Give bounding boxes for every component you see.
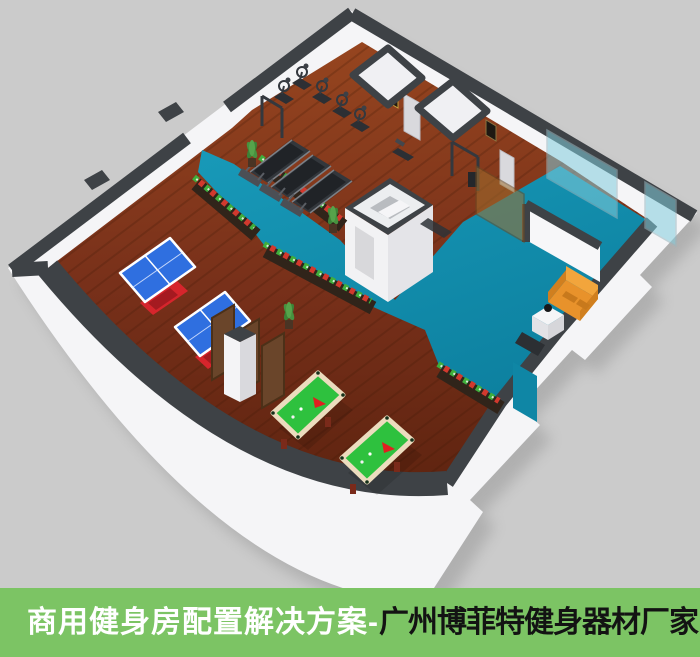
floor-plan-svg xyxy=(0,0,700,588)
floor-plan-scene xyxy=(0,0,700,588)
page: 商用健身房配置解决方案-广州博菲特健身器材厂家 xyxy=(0,0,700,657)
wall-top-left-corner xyxy=(12,268,48,270)
banner-text-secondary: 广州博菲特健身器材厂家 xyxy=(379,608,698,638)
banner-text-primary: 商用健身房配置解决方案- xyxy=(27,608,379,638)
partition-screen xyxy=(262,333,284,408)
bottom-banner: 商用健身房配置解决方案-广州博菲特健身器材厂家 xyxy=(0,588,700,657)
column xyxy=(224,326,256,402)
